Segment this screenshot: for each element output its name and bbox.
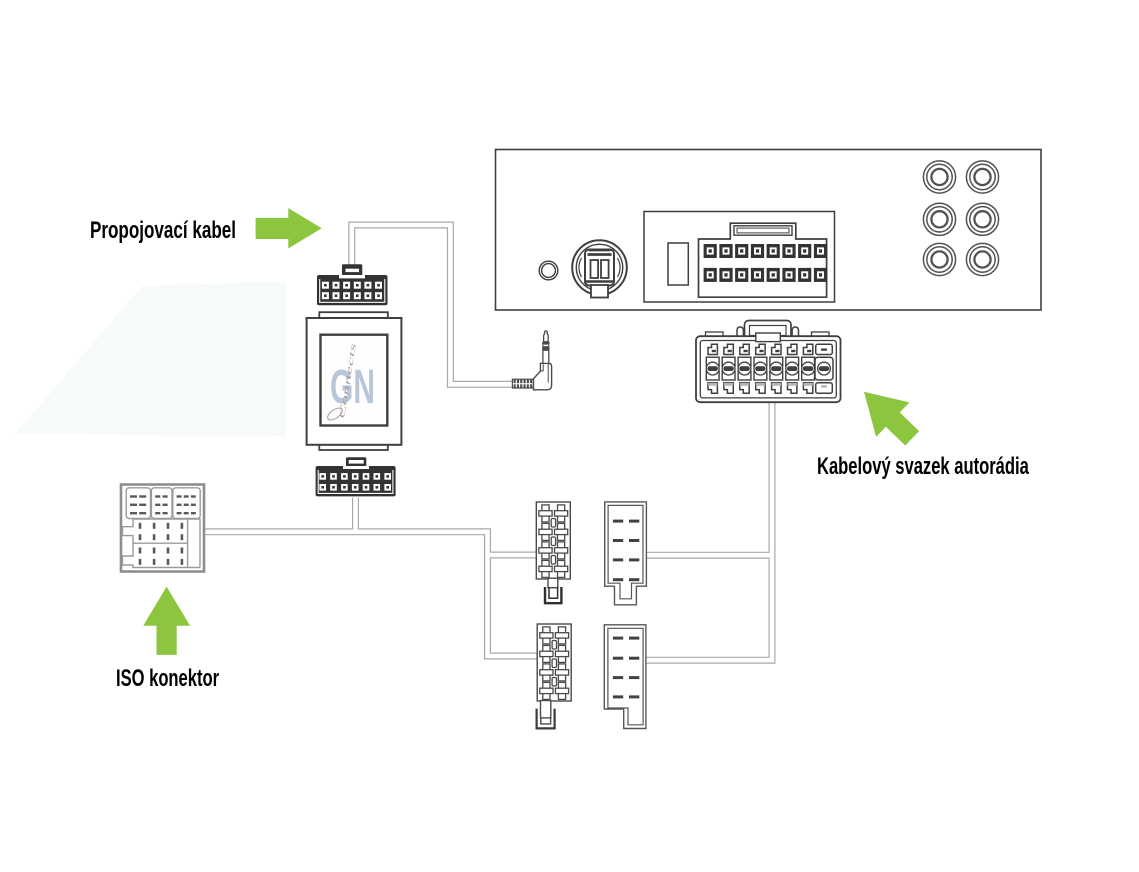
svg-text:ISO konektor: ISO konektor (116, 665, 219, 692)
svg-text:Kabelový svazek autorádia: Kabelový svazek autorádia (817, 453, 1029, 480)
svg-text:Propojovací kabel: Propojovací kabel (90, 217, 236, 244)
